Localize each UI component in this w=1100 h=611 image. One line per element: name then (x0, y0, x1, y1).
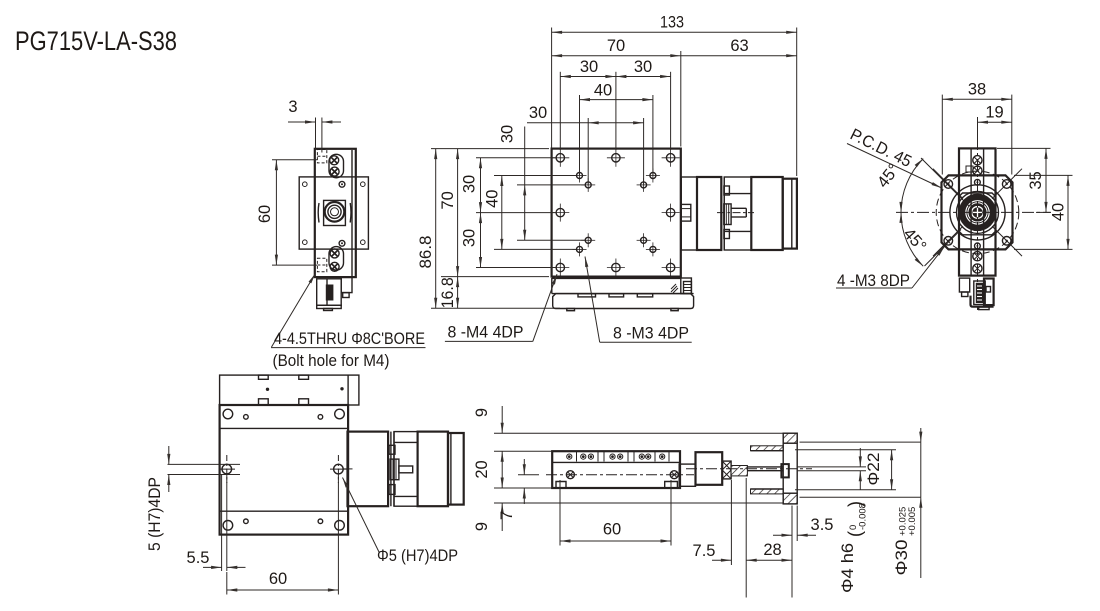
svg-text:30: 30 (634, 58, 652, 76)
svg-text:4 -M3 8DP: 4 -M3 8DP (837, 272, 910, 290)
svg-text:4-4.5THRU Φ8C'BORE: 4-4.5THRU Φ8C'BORE (274, 330, 425, 348)
svg-text:): ) (845, 501, 865, 507)
svg-text:40: 40 (484, 190, 502, 208)
svg-text:9: 9 (473, 408, 491, 417)
svg-text:60: 60 (603, 521, 621, 539)
svg-text:(: ( (845, 531, 865, 537)
svg-text:133: 133 (660, 14, 684, 32)
svg-text:70: 70 (439, 191, 457, 209)
svg-text:3.5: 3.5 (811, 516, 834, 534)
svg-text:20: 20 (473, 460, 491, 478)
svg-text:28: 28 (763, 541, 781, 559)
svg-text:5.5: 5.5 (187, 549, 210, 567)
svg-text:8 -M3 4DP: 8 -M3 4DP (613, 325, 689, 343)
svg-text:9: 9 (473, 522, 491, 531)
svg-text:16.8: 16.8 (439, 277, 457, 308)
svg-text:70: 70 (607, 37, 625, 55)
svg-text:40: 40 (594, 82, 612, 100)
svg-text:+0.005: +0.005 (907, 507, 918, 536)
svg-text:30: 30 (580, 58, 598, 76)
svg-text:PG715V-LA-S38: PG715V-LA-S38 (15, 26, 177, 56)
svg-text:60: 60 (269, 570, 287, 588)
svg-text:Φ4 h6: Φ4 h6 (839, 543, 857, 593)
svg-text:63: 63 (730, 37, 748, 55)
svg-text:7: 7 (498, 511, 516, 520)
svg-text:(Bolt hole for M4): (Bolt hole for M4) (273, 352, 390, 370)
svg-text:Φ30: Φ30 (893, 540, 911, 576)
svg-text:30: 30 (461, 175, 479, 193)
svg-text:30: 30 (461, 229, 479, 247)
svg-text:45°: 45° (900, 225, 930, 256)
svg-text:7.5: 7.5 (693, 542, 716, 560)
svg-text:3: 3 (288, 98, 297, 116)
svg-text:60: 60 (256, 205, 274, 223)
svg-text:30: 30 (499, 125, 517, 143)
svg-text:86.8: 86.8 (417, 236, 435, 269)
svg-text:38: 38 (968, 81, 986, 99)
svg-text:35: 35 (1027, 171, 1045, 189)
svg-text:40: 40 (1050, 203, 1068, 221)
svg-text:5 (H7)4DP: 5 (H7)4DP (146, 477, 164, 551)
svg-text:Φ5 (H7)4DP: Φ5 (H7)4DP (377, 547, 458, 565)
svg-text:30: 30 (529, 104, 547, 122)
svg-text:Φ22: Φ22 (865, 453, 883, 486)
svg-text:19: 19 (985, 104, 1003, 122)
svg-text:8 -M4 4DP: 8 -M4 4DP (448, 324, 524, 342)
